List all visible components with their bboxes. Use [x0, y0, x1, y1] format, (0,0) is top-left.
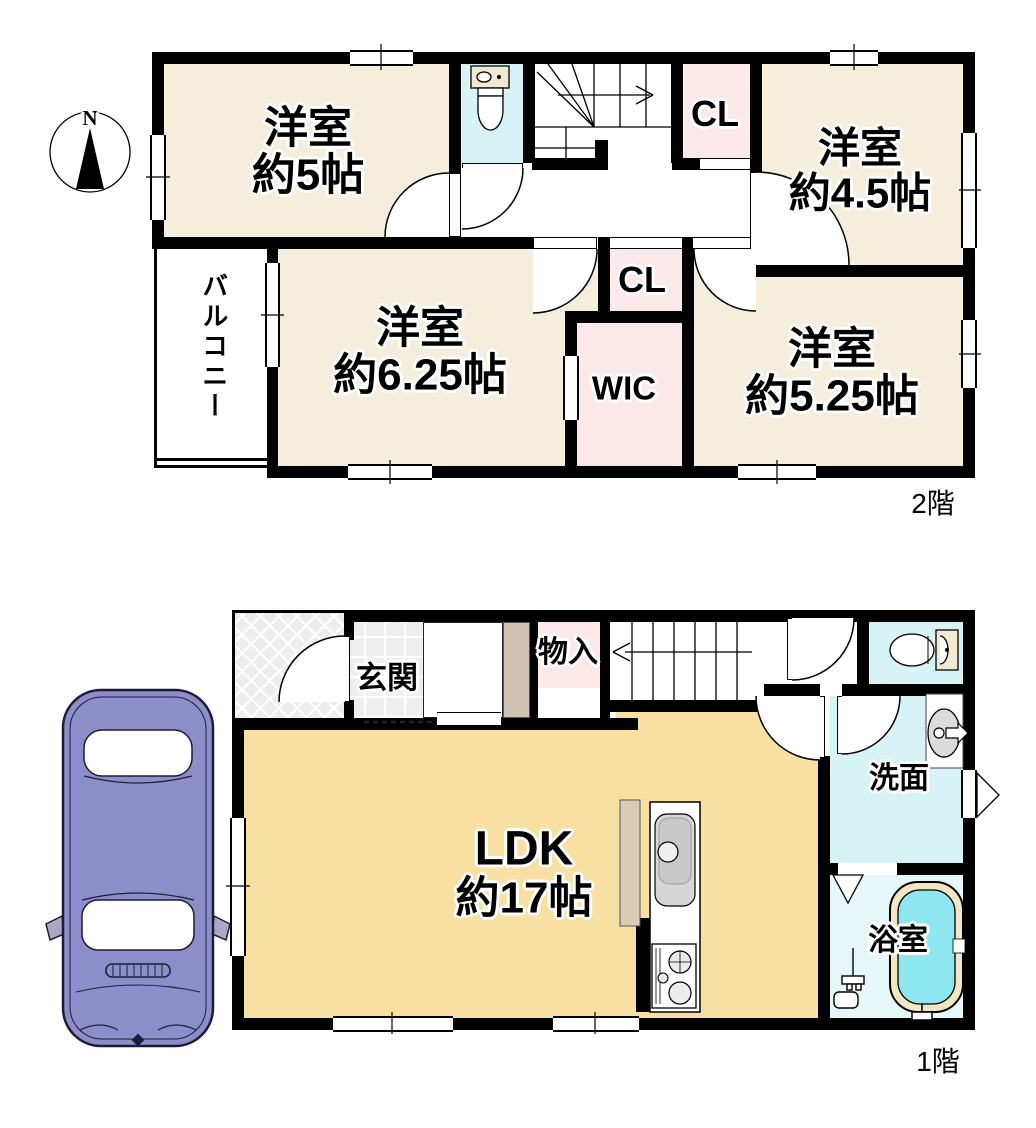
wall [963, 52, 975, 478]
window [961, 133, 977, 248]
door-leaf [750, 172, 762, 266]
window [333, 1016, 453, 1032]
wall [598, 249, 610, 311]
room-toilet-1f [869, 622, 963, 684]
window [961, 320, 977, 388]
wic-label: WIC [592, 372, 656, 407]
entrance-closet [423, 622, 503, 718]
shoe-cabinet [503, 622, 530, 718]
room-label-western-6-25: 洋室 約6.25帖 [333, 305, 507, 398]
car-illustration [46, 690, 230, 1046]
wall [897, 863, 963, 875]
door-leaf [462, 163, 523, 173]
floor2-label: 2階 [911, 489, 955, 519]
wall [842, 684, 963, 696]
closet-upper-door [700, 158, 750, 170]
door-leaf [449, 173, 461, 237]
balcony-door-window [265, 263, 280, 367]
porch-edge [232, 610, 235, 718]
balcony-rail-bottom2 [154, 465, 267, 468]
room-size: 約6.25帖 [333, 352, 507, 399]
room-ldk-strip2 [776, 696, 818, 712]
closet-upper-label: CL [691, 95, 739, 133]
door-leaf [837, 696, 847, 754]
wall [682, 249, 694, 311]
wall [610, 700, 776, 712]
wall [523, 52, 535, 163]
wall [565, 311, 694, 323]
room-name: 洋室 [252, 105, 364, 152]
bathroom-label: 浴室 [868, 925, 928, 957]
balcony-rail-bottom [154, 458, 267, 461]
wall [232, 718, 638, 730]
window [230, 818, 246, 956]
closet-middle-door [610, 237, 682, 249]
wall [532, 158, 603, 170]
floor-plan: N 洋室 約5帖 洋室 約4.5帖 洋室 約6.25帖 洋室 約5.25帖 CL… [0, 0, 1036, 1128]
wall [344, 700, 354, 718]
door-leaf [787, 618, 797, 680]
room-size: 約17帖 [456, 875, 593, 922]
wall [595, 140, 608, 170]
room-label-western-5-25: 洋室 約5.25帖 [745, 326, 919, 419]
wall [152, 237, 461, 249]
staircase-1f [613, 622, 752, 700]
entrance-porch [232, 612, 344, 718]
door-leaf [692, 237, 756, 249]
window [348, 464, 432, 480]
wall [461, 237, 533, 249]
wall [636, 918, 650, 1012]
compass-north-label: N [82, 107, 97, 129]
ldk-label: LDK 約17帖 [456, 824, 593, 922]
wall [600, 622, 610, 718]
wall [776, 684, 820, 696]
room-name: 洋室 [333, 305, 507, 352]
wall [682, 323, 694, 466]
wall [672, 158, 700, 170]
wall [750, 265, 963, 277]
door-leaf [533, 237, 597, 249]
wall [818, 756, 830, 1018]
window [830, 50, 878, 66]
entrance-door-leaf [340, 636, 350, 702]
room-name: LDK [456, 824, 593, 875]
floor1-label: 1階 [916, 1047, 960, 1077]
wic-door [563, 356, 579, 420]
balcony-rail-left [154, 249, 157, 468]
wall [963, 610, 975, 1030]
room-label-western-5: 洋室 約5帖 [252, 105, 364, 198]
wall [449, 64, 461, 173]
room-name: 洋室 [745, 326, 919, 373]
wall [750, 52, 762, 172]
closet-middle-label: CL [618, 261, 666, 299]
room-name: 洋室 [789, 126, 931, 171]
room-label-western-4-5: 洋室 約4.5帖 [789, 126, 931, 215]
wall [857, 622, 869, 684]
window [961, 770, 977, 818]
wall [830, 863, 838, 875]
window [738, 464, 816, 480]
storage-label: 物入 [538, 637, 598, 669]
room-ldk-strip [616, 712, 818, 730]
room-western-6-25-upper [278, 249, 598, 311]
room-size: 約5.25帖 [745, 373, 919, 420]
room-size: 約5帖 [252, 152, 364, 199]
wall [764, 684, 776, 712]
wall [344, 610, 975, 622]
closet-sliding-door [437, 712, 501, 726]
wall [598, 237, 610, 249]
window [150, 135, 166, 220]
porch-edge [232, 610, 346, 613]
room-size: 約4.5帖 [789, 171, 931, 216]
balcony-label: バルコニー [199, 272, 227, 422]
wall [671, 52, 683, 163]
entrance-label: 玄関 [356, 663, 418, 696]
window [553, 1016, 639, 1032]
washroom-label: 洗面 [869, 763, 929, 795]
wall [530, 622, 538, 718]
door-leaf [815, 696, 825, 758]
window [350, 50, 413, 66]
window-casement-triangle [977, 773, 999, 817]
room-toilet-2f [461, 64, 523, 163]
